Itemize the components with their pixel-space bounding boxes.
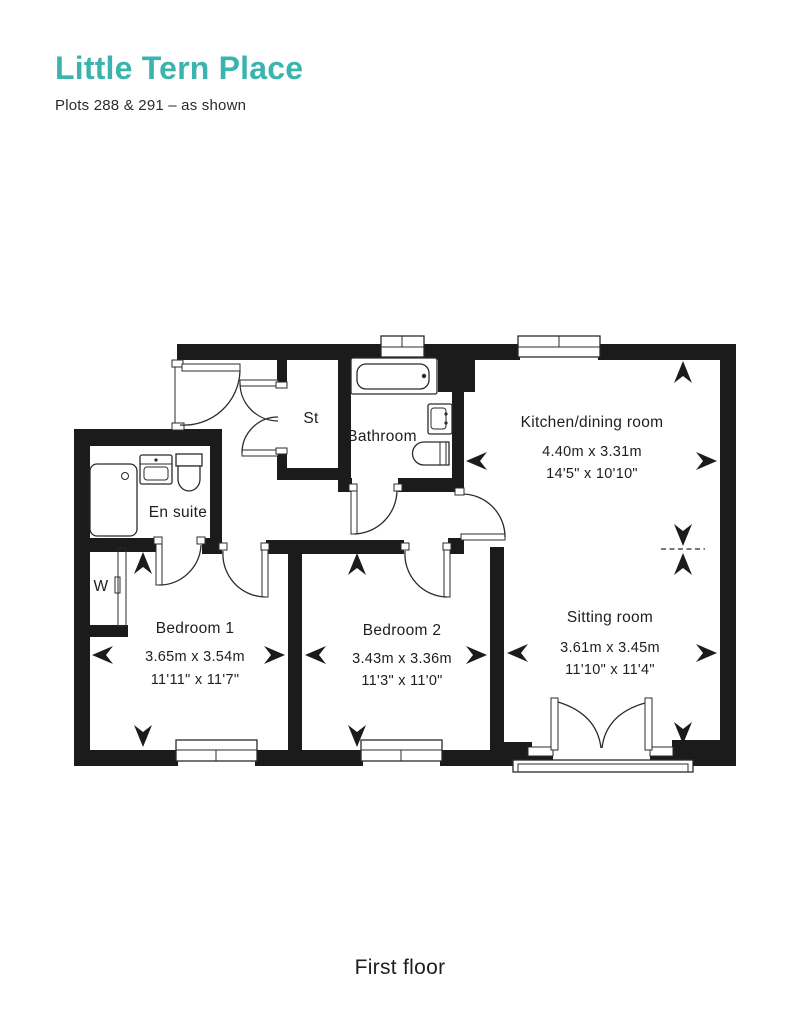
wall-segment — [277, 468, 345, 480]
bathroom-sink — [428, 404, 452, 434]
door-leaf — [645, 698, 652, 750]
door-leaf — [240, 380, 278, 386]
wall-segment — [720, 344, 736, 766]
window-bedroom2 — [361, 740, 442, 761]
dim-arrow-right — [264, 646, 285, 664]
door-leaf — [351, 489, 357, 534]
door-leaf — [461, 534, 505, 540]
label-bedroom2-metric: 3.43m x 3.36m — [352, 651, 452, 667]
dim-arrow-up — [674, 361, 692, 383]
dim-arrow-left — [466, 452, 487, 470]
door-swing-arc — [462, 494, 505, 537]
wall-segment — [338, 360, 351, 486]
dim-arrow-up — [674, 553, 692, 575]
door-bathroom — [349, 484, 402, 534]
floor-label: First floor — [355, 956, 446, 979]
label-ensuite: En suite — [149, 504, 207, 521]
door-entrance — [172, 360, 240, 430]
label-kitchen-name: Kitchen/dining room — [521, 414, 664, 431]
door-swing-arc — [354, 490, 397, 534]
dim-arrow-down — [134, 725, 152, 747]
label-bedroom1-name: Bedroom 1 — [156, 620, 235, 637]
door-sitting-room — [455, 488, 505, 540]
door-leaf — [444, 549, 450, 597]
door-swing-arc — [242, 417, 278, 453]
shower — [90, 464, 137, 536]
wall-segment — [88, 538, 160, 552]
wall-segment — [266, 540, 404, 554]
door-swing-arc — [558, 702, 601, 748]
label-wardrobe: W — [94, 578, 109, 595]
label-bedroom2-imperial: 11'3" x 11'0" — [361, 673, 442, 689]
dim-arrow-left — [92, 646, 113, 664]
ensuite-toilet — [176, 454, 202, 491]
label-sitting-name: Sitting room — [567, 609, 653, 626]
door-swing-arc — [240, 383, 278, 421]
label-bathroom: Bathroom — [347, 428, 417, 445]
wall-segment — [288, 543, 302, 750]
wall-segment — [210, 429, 222, 540]
window-bathroom — [381, 336, 424, 357]
label-kitchen-metric: 4.40m x 3.31m — [542, 444, 642, 460]
door-french — [528, 698, 673, 756]
dim-arrow-left — [305, 646, 326, 664]
wall-segment — [438, 344, 475, 392]
door-leaf — [182, 364, 240, 371]
door-swing-arc — [180, 371, 240, 425]
wall-segment — [255, 750, 363, 766]
door-leaf — [156, 543, 162, 585]
bathtub — [351, 358, 437, 394]
windows — [176, 336, 693, 772]
label-bedroom1-metric: 3.65m x 3.54m — [145, 649, 245, 665]
wall-segment — [74, 429, 222, 446]
window-bedroom1 — [176, 740, 257, 761]
bathroom-toilet — [413, 442, 450, 465]
door-bedroom2 — [401, 543, 451, 597]
dim-arrow-up — [348, 553, 366, 575]
label-kitchen-imperial: 14'5" x 10'10" — [546, 466, 638, 482]
dim-arrow-right — [696, 644, 717, 662]
dim-arrow-right — [466, 646, 487, 664]
dim-arrow-down — [674, 524, 692, 546]
door-wardrobe-sliding — [115, 548, 126, 626]
juliet-balcony — [513, 760, 693, 772]
floorplan: Kitchen/dining room 4.40m x 3.31m 14'5" … — [0, 0, 800, 1036]
wall-segment — [88, 625, 128, 637]
door-leaf — [242, 450, 278, 456]
label-sitting-metric: 3.61m x 3.45m — [560, 640, 660, 656]
door-storage-double — [240, 380, 287, 456]
label-store: St — [303, 410, 319, 427]
door-swing-arc — [159, 545, 201, 585]
ensuite-sink — [140, 455, 172, 484]
wall-segment — [490, 547, 504, 750]
wall-segment — [398, 478, 464, 492]
dim-arrow-left — [507, 644, 528, 662]
window-kitchen — [518, 336, 600, 357]
dim-arrow-up — [134, 552, 152, 574]
door-leaf — [551, 698, 558, 750]
door-swing-arc — [223, 551, 265, 597]
label-bedroom1-imperial: 11'11" x 11'7" — [151, 672, 240, 688]
wall-segment — [74, 430, 90, 766]
label-bedroom2-name: Bedroom 2 — [363, 622, 442, 639]
door-swing-arc — [405, 551, 447, 597]
door-ensuite — [154, 537, 205, 585]
wall-segment — [672, 740, 720, 752]
door-bedroom1 — [219, 543, 269, 597]
dim-arrow-right — [696, 452, 717, 470]
door-leaf — [262, 549, 268, 597]
label-sitting-imperial: 11'10" x 11'4" — [565, 662, 655, 678]
wall-segment — [452, 392, 464, 492]
door-swing-arc — [602, 703, 645, 748]
wall-segment — [598, 344, 736, 360]
floorplan-page: Little Tern Place Plots 288 & 291 – as s… — [0, 0, 800, 1036]
